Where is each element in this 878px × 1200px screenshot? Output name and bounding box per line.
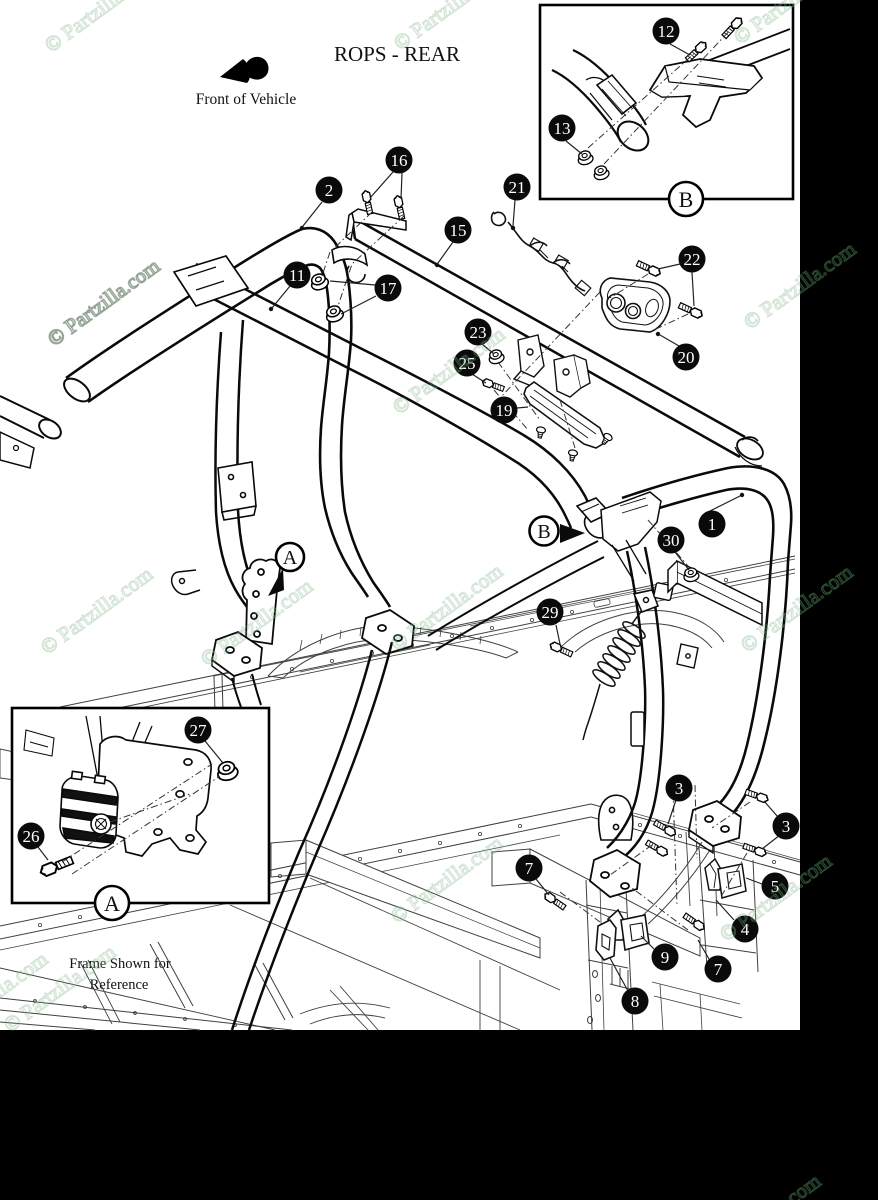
svg-text:17: 17 [380, 279, 398, 298]
svg-text:B: B [679, 187, 694, 212]
svg-text:26: 26 [23, 827, 40, 846]
svg-text:22: 22 [684, 250, 701, 269]
svg-text:11: 11 [289, 266, 305, 285]
svg-text:16: 16 [391, 151, 408, 170]
svg-text:12: 12 [658, 22, 675, 41]
svg-text:8: 8 [631, 992, 640, 1011]
svg-text:1: 1 [708, 515, 717, 534]
svg-text:B: B [537, 521, 550, 543]
svg-text:A: A [283, 547, 298, 569]
svg-text:9: 9 [661, 948, 670, 967]
svg-text:19: 19 [496, 401, 513, 420]
svg-text:13: 13 [554, 119, 571, 138]
svg-text:30: 30 [663, 531, 680, 550]
svg-text:20: 20 [678, 348, 695, 367]
svg-text:7: 7 [714, 960, 723, 979]
svg-text:29: 29 [542, 603, 559, 622]
svg-text:A: A [104, 891, 120, 916]
svg-text:3: 3 [782, 817, 791, 836]
svg-text:15: 15 [450, 221, 467, 240]
svg-text:2: 2 [325, 181, 334, 200]
svg-text:Front of Vehicle: Front of Vehicle [196, 91, 297, 108]
svg-text:27: 27 [190, 721, 208, 740]
svg-text:3: 3 [675, 779, 684, 798]
svg-text:21: 21 [509, 178, 526, 197]
svg-text:7: 7 [525, 859, 534, 878]
